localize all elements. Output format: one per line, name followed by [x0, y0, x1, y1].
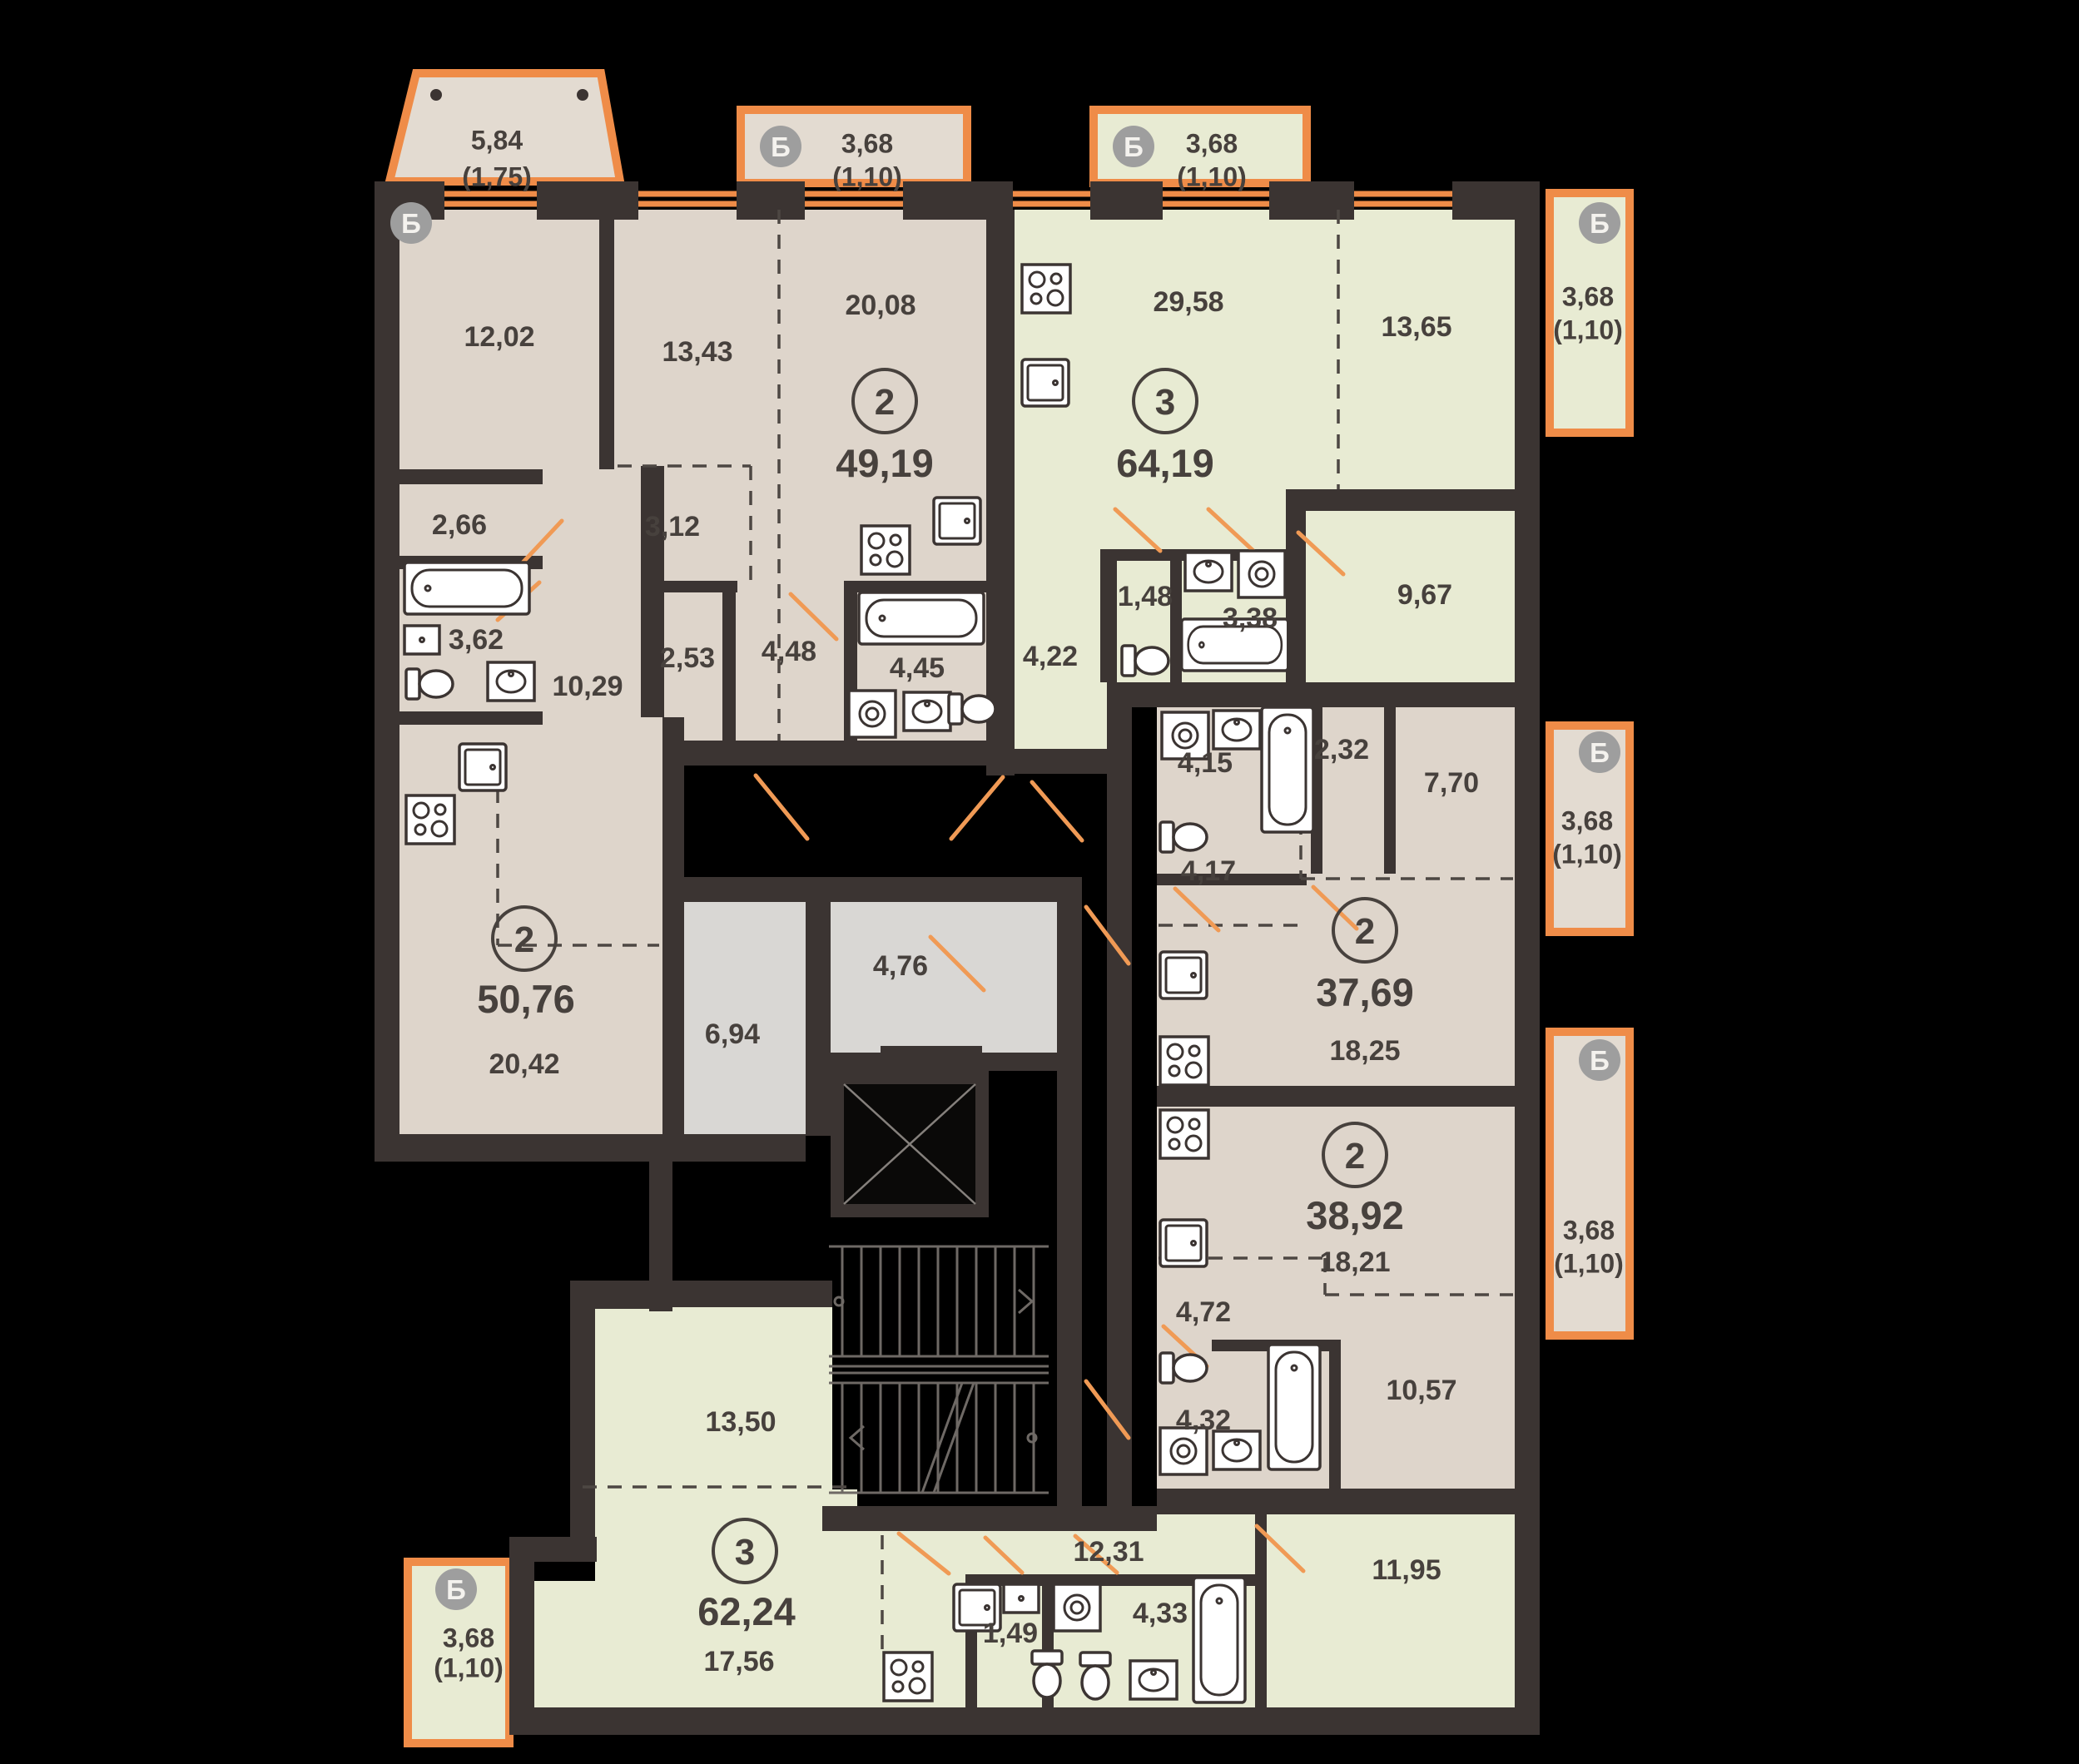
bathtub-icon [1262, 707, 1313, 832]
room-area-label: 4,17 [1181, 855, 1236, 887]
room-area-label: 20,08 [845, 290, 915, 321]
washbasin-icon [904, 692, 950, 731]
toilet-icon [949, 694, 995, 724]
room-area-label: 7,70 [1424, 767, 1479, 799]
apartment-type: 2 [1345, 1136, 1365, 1177]
room-area-label: 4,22 [1023, 641, 1078, 672]
stairs [829, 1246, 1049, 1493]
room-area-label: 10,29 [552, 671, 623, 702]
room-area-label: 3,62 [449, 624, 504, 656]
room-area-label: 13,43 [662, 336, 732, 368]
apartment-type: 3 [735, 1532, 755, 1573]
room-area-label: 12,31 [1073, 1536, 1144, 1568]
balcony-area: 3,68 [1561, 806, 1613, 836]
sink-icon [1004, 1584, 1039, 1613]
room-area-label: 4,15 [1178, 747, 1233, 779]
room-area-label: 3,12 [645, 511, 700, 543]
kitchen-sink-icon [1160, 952, 1207, 998]
balcony-area: 3,68 [1186, 129, 1238, 159]
toilet-icon [1160, 1353, 1207, 1383]
room-area-label: 4,48 [762, 636, 816, 667]
kitchen-sink-icon [1160, 1220, 1207, 1266]
elevator [831, 1046, 989, 1217]
balcony-letter: Б [1590, 737, 1610, 768]
washbasin-icon [488, 662, 534, 701]
room-area-label: 20,42 [489, 1048, 559, 1080]
balcony-area-coef: (1,10) [832, 162, 902, 192]
bathtub-icon [404, 562, 529, 614]
balcony-letter: Б [1590, 208, 1610, 239]
balcony-area-coef: (1,10) [1554, 1249, 1624, 1279]
floor-plan: 249,1913,4320,083,122,534,484,45364,1929… [0, 0, 2079, 1764]
room-area-label: 4,45 [890, 652, 945, 684]
room-area-label: 4,72 [1176, 1296, 1231, 1328]
apartment-type: 2 [875, 382, 895, 423]
room-area-label: 12,02 [464, 321, 534, 353]
room-area-label: 13,65 [1381, 311, 1451, 343]
balcony-area: 3,68 [1562, 282, 1614, 312]
balcony-area: 3,68 [443, 1623, 494, 1653]
washbasin-icon [1130, 1661, 1177, 1699]
toilet-icon [1032, 1651, 1062, 1697]
room-area-label: 2,32 [1314, 734, 1369, 766]
balcony-area-coef: (1,10) [1553, 315, 1623, 345]
stove-icon [1160, 1037, 1208, 1085]
room-area-label: 13,50 [705, 1406, 776, 1438]
bathtub-icon [1268, 1345, 1320, 1469]
balcony-area: 5,84 [471, 126, 523, 156]
room-area-label: 10,57 [1386, 1375, 1456, 1406]
apartment-area: 62,24 [697, 1589, 796, 1633]
room-area-label: 4,32 [1176, 1405, 1231, 1436]
kitchen-sink-icon [1022, 359, 1069, 406]
apartment-area: 37,69 [1316, 970, 1414, 1014]
washer-icon [1054, 1584, 1100, 1631]
balcony-letter: Б [1590, 1045, 1610, 1076]
washbasin-icon [1213, 711, 1260, 749]
room-area-label: 1,49 [983, 1618, 1038, 1649]
room-area-label: 1,48 [1118, 581, 1173, 612]
stove-icon [861, 526, 910, 574]
room-area-label: 11,95 [1372, 1554, 1441, 1586]
balcony-area: 3,68 [1563, 1216, 1615, 1246]
balcony-area-coef: (1,10) [434, 1653, 504, 1683]
room-area-label: 18,21 [1319, 1246, 1390, 1278]
balcony-letter: Б [446, 1574, 466, 1605]
room-area-label: 29,58 [1153, 286, 1223, 318]
bathtub-icon [859, 592, 984, 644]
washer-icon [849, 691, 896, 737]
room-area-label: 18,25 [1329, 1035, 1400, 1067]
stove-icon [1022, 265, 1070, 313]
toilet-icon [1080, 1653, 1110, 1699]
room-area-label: 2,66 [432, 509, 487, 541]
balcony-area-coef: (1,10) [1177, 162, 1247, 192]
balcony-area-coef: (1,75) [462, 162, 532, 192]
kitchen-sink-icon [459, 744, 506, 790]
balcony-letter: Б [401, 208, 421, 239]
apartment-type: 2 [1355, 911, 1375, 952]
toilet-icon [1160, 822, 1207, 852]
balcony-area-coef: (1,10) [1552, 840, 1622, 870]
room-area-label: 9,67 [1397, 579, 1452, 611]
apartment-area: 50,76 [477, 977, 575, 1021]
sink-icon [404, 626, 439, 654]
toilet-icon [406, 669, 453, 699]
stove-icon [884, 1653, 932, 1701]
toilet-icon [1122, 646, 1169, 676]
room-area-label: 2,53 [660, 642, 715, 674]
apartment-type: 3 [1155, 382, 1175, 423]
balcony-letter: Б [1124, 131, 1144, 162]
stove-icon [406, 795, 454, 844]
core-room-area-label: 6,94 [705, 1018, 760, 1050]
core-room-area-label: 4,76 [873, 950, 928, 982]
apartment-area: 49,19 [836, 441, 934, 485]
balcony-area: 3,68 [841, 129, 893, 159]
balcony-letter: Б [771, 131, 791, 162]
room-area-label: 17,56 [703, 1646, 774, 1677]
kitchen-sink-icon [934, 498, 980, 544]
apartment-area: 64,19 [1116, 441, 1214, 485]
washbasin-icon [1185, 552, 1232, 591]
floor-plan-page: 249,1913,4320,083,122,534,484,45364,1929… [0, 0, 2079, 1764]
washbasin-icon [1213, 1431, 1260, 1469]
apartment-type: 2 [514, 919, 534, 960]
room-area-label: 4,33 [1133, 1598, 1188, 1629]
bathtub-icon [1193, 1578, 1245, 1702]
washer-icon [1238, 551, 1285, 597]
stove-icon [1160, 1110, 1208, 1158]
apartment-area: 38,92 [1306, 1193, 1404, 1237]
room-area-label: 3,38 [1223, 602, 1278, 634]
